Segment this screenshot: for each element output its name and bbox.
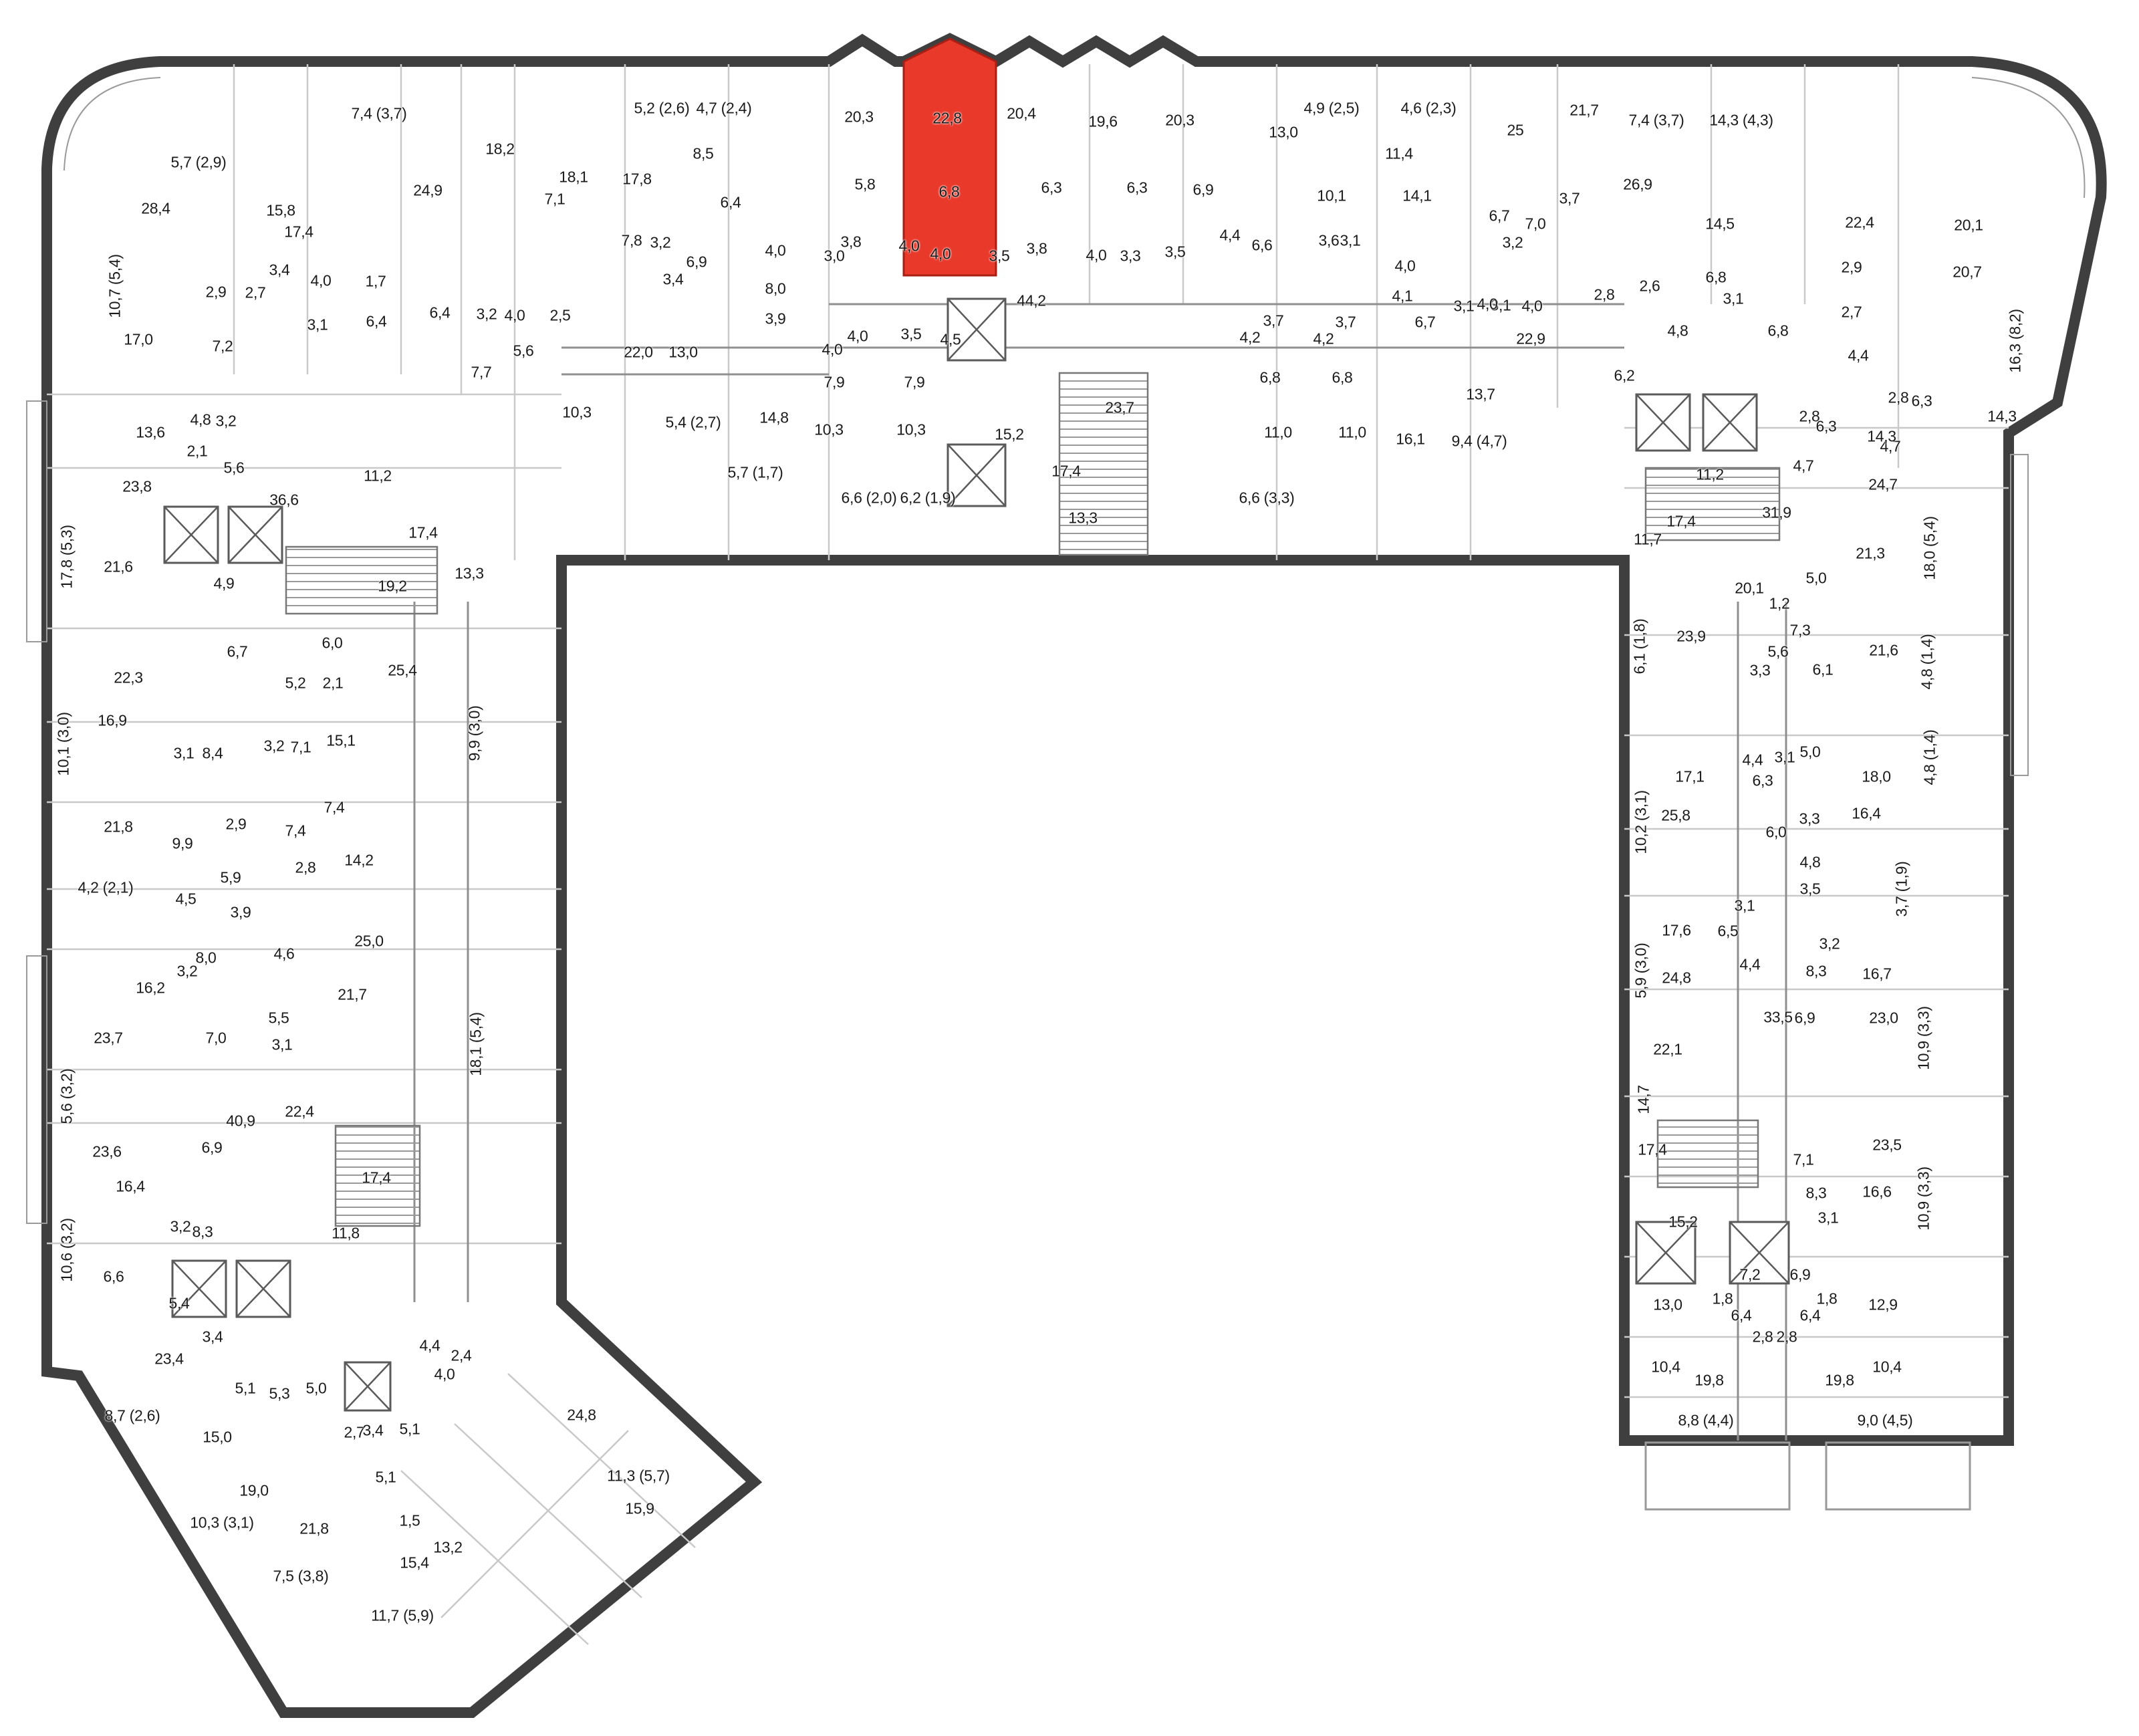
area-label: 13,3	[1068, 509, 1098, 527]
area-label: 3,7 (1,9)	[1893, 862, 1911, 917]
area-label: 8,7 (2,6)	[105, 1407, 160, 1425]
area-label: 10,3	[814, 421, 844, 439]
area-label: 10,3	[562, 404, 592, 422]
area-label: 4,0	[765, 242, 785, 260]
area-label: 15,4	[400, 1554, 429, 1572]
area-label: 17,1	[1675, 768, 1705, 786]
area-label: 2,9	[205, 283, 226, 301]
area-label: 4,0	[1394, 257, 1415, 275]
area-label: 17,4	[408, 524, 438, 542]
area-label: 5,1	[235, 1380, 255, 1398]
area-label: 25,0	[354, 933, 384, 951]
area-label: 4,0	[1521, 297, 1542, 316]
area-label: 11,3 (5,7)	[607, 1467, 670, 1485]
area-label: 17,4	[1666, 513, 1696, 531]
area-label: 5,7 (1,7)	[728, 464, 783, 482]
area-label: 5,1	[399, 1420, 420, 1439]
area-label: 6,9	[686, 253, 707, 271]
area-label: 3,1	[1453, 297, 1474, 316]
area-label: 3,1	[173, 745, 194, 763]
area-label: 16,6	[1862, 1183, 1892, 1201]
area-label: 1,7	[365, 273, 386, 291]
area-label: 6,7	[227, 643, 247, 661]
area-label: 15,2	[995, 426, 1024, 444]
area-label: 6,4	[429, 304, 450, 322]
area-label: 6,6	[1251, 237, 1272, 255]
area-label: 3,1	[1734, 897, 1755, 915]
area-label: 3,8	[1026, 240, 1047, 258]
area-label: 4,0	[434, 1366, 455, 1384]
area-label: 4,0	[847, 328, 868, 346]
area-label: 14,3	[1867, 428, 1896, 446]
area-label: 6,6 (3,3)	[1239, 489, 1295, 507]
area-label: 19,6	[1088, 113, 1118, 131]
area-label: 5,4	[168, 1295, 189, 1313]
area-label: 20,3	[1165, 112, 1194, 130]
area-label: 13,7	[1466, 386, 1495, 404]
area-label: 5,6	[1767, 643, 1788, 661]
area-label: 7,0	[205, 1029, 226, 1047]
area-label: 3,0	[824, 247, 844, 265]
area-label: 2,1	[322, 674, 343, 693]
area-label: 3,3	[1799, 810, 1819, 828]
area-label: 10,9 (3,3)	[1915, 1006, 1933, 1070]
area-label: 18,1	[559, 168, 588, 187]
area-label: 13,3	[455, 565, 484, 583]
area-label: 3,1	[1723, 290, 1743, 308]
area-label: 3,7	[1335, 314, 1356, 332]
area-label: 4,5	[175, 890, 196, 908]
area-label: 2,8	[1752, 1328, 1773, 1346]
entrance-porch	[1646, 1443, 1789, 1509]
area-label: 2,8	[1594, 286, 1614, 304]
area-label: 36,6	[269, 491, 299, 509]
area-label: 6,4	[1731, 1307, 1751, 1325]
area-label: 6,9	[1192, 181, 1213, 199]
floor-plan: 10,7 (5,4)28,45,7 (2,9)15,817,43,424,97,…	[0, 0, 2139, 1736]
area-label: 16,2	[136, 979, 165, 997]
area-label: 3,2	[170, 1218, 191, 1236]
area-label: 18,0 (5,4)	[1921, 516, 1939, 580]
area-label: 19,8	[1694, 1372, 1724, 1390]
area-label: 9,4 (4,7)	[1452, 432, 1507, 451]
area-label: 21,7	[338, 986, 367, 1004]
area-label: 22,4	[1845, 214, 1874, 232]
area-label: 6,3	[1815, 418, 1836, 436]
area-label: 24,7	[1868, 476, 1898, 494]
area-label: 3,1	[1817, 1209, 1838, 1227]
area-label: 7,9	[904, 374, 924, 392]
area-label: 7,9	[824, 374, 844, 392]
area-label: 17,4	[284, 223, 313, 241]
area-label: 1,8	[1816, 1290, 1837, 1308]
area-label: 23,0	[1869, 1009, 1898, 1027]
area-label: 26,9	[1623, 176, 1652, 194]
area-label: 5,9	[220, 869, 241, 887]
area-label: 4,9 (2,5)	[1304, 100, 1360, 118]
area-label: 6,2 (1,9)	[900, 489, 956, 507]
area-label: 11,0	[1338, 424, 1366, 442]
area-label: 2,8	[295, 859, 316, 877]
area-label: 9,0 (4,5)	[1858, 1412, 1913, 1430]
area-label: 7,4 (3,7)	[1629, 112, 1684, 130]
area-label: 4,0	[1086, 247, 1106, 265]
area-label: 22,0	[624, 344, 653, 362]
area-label: 6,8	[1767, 322, 1788, 340]
area-label: 25	[1507, 122, 1524, 140]
area-label: 8,3	[192, 1223, 213, 1241]
area-label: 15,0	[203, 1429, 232, 1447]
area-label: 5,0	[1805, 570, 1826, 588]
area-label: 6,5	[1717, 922, 1738, 941]
area-label: 17,4	[362, 1169, 391, 1187]
area-label: 7,1	[544, 191, 565, 209]
area-label: 3,7	[1559, 190, 1580, 208]
area-label: 4,0	[822, 341, 842, 359]
area-label: 11,7 (5,9)	[371, 1607, 434, 1625]
area-label: 4,7 (2,4)	[697, 100, 752, 118]
area-label: 8,4	[202, 745, 223, 763]
area-label: 3,2	[215, 412, 236, 430]
area-label: 6,4	[1799, 1307, 1820, 1325]
area-label: 20,1	[1735, 580, 1764, 598]
area-label: 8,0	[195, 949, 216, 967]
area-label: 44,2	[1017, 292, 1046, 310]
area-label: 4,4	[1742, 751, 1763, 769]
area-label: 15,2	[1668, 1213, 1698, 1231]
area-label: 18,0	[1862, 768, 1891, 786]
building-footprint	[47, 39, 2102, 1713]
area-label: 6,8	[1332, 369, 1352, 387]
area-label: 10,3	[896, 421, 926, 439]
area-label: 4,4	[1848, 347, 1868, 365]
area-label: 16,3 (8,2)	[2007, 309, 2025, 372]
area-label: 8,0	[765, 280, 785, 298]
area-label: 4,0	[930, 245, 951, 263]
area-label: 40,9	[226, 1112, 255, 1130]
area-label: 3,4	[362, 1422, 383, 1440]
area-label: 6,2	[1614, 367, 1634, 385]
area-label: 3,9	[230, 904, 251, 922]
area-label: 17,8 (5,3)	[58, 525, 76, 588]
area-label: 6,8	[1705, 269, 1726, 287]
area-label: 6,4	[720, 194, 741, 212]
area-label: 23,7	[1105, 399, 1134, 417]
area-label: 17,4	[1051, 463, 1081, 481]
area-label: 3,2	[1502, 234, 1523, 252]
area-label: 1,5	[399, 1512, 420, 1530]
area-label: 5,6	[513, 342, 533, 360]
area-label: 21,6	[104, 558, 133, 576]
area-label: 16,7	[1862, 965, 1892, 983]
area-label: 2,7	[245, 284, 265, 302]
area-label: 3,3	[1749, 662, 1770, 680]
area-label: 7,3	[1789, 622, 1810, 640]
area-label: 11,7	[1634, 531, 1662, 549]
area-label: 14,8	[759, 409, 789, 427]
area-label: 2,7	[344, 1424, 364, 1442]
area-label: 6,1 (1,8)	[1631, 619, 1649, 674]
area-label: 3,5	[900, 326, 921, 344]
area-label: 4,8	[1799, 854, 1820, 872]
area-label: 24,9	[413, 182, 443, 200]
area-label: 6,0	[322, 634, 342, 652]
area-label: 10,9 (3,3)	[1915, 1166, 1933, 1230]
area-label: 13,0	[668, 344, 698, 362]
area-label: 7,2	[212, 338, 233, 356]
area-label: 5,2	[285, 674, 305, 693]
area-label: 7,7	[471, 364, 491, 382]
area-label: 16,4	[1852, 805, 1881, 823]
area-label: 23,9	[1676, 628, 1706, 646]
area-label: 3,5	[1799, 880, 1820, 898]
area-label: 24,8	[567, 1406, 596, 1424]
area-label: 2,1	[186, 443, 207, 461]
area-label: 23,7	[94, 1029, 123, 1047]
area-label: 4,8 (1,4)	[1918, 634, 1936, 690]
area-label: 6,3	[1752, 772, 1773, 790]
area-label: 16,4	[116, 1178, 145, 1196]
area-label: 17,8	[622, 170, 652, 189]
area-label: 22,1	[1653, 1041, 1682, 1059]
area-label: 6,3	[1041, 179, 1061, 197]
area-label: 11,2	[364, 467, 392, 485]
area-label: 6,9	[1789, 1266, 1810, 1284]
area-label: 11,4	[1385, 145, 1413, 163]
area-label: 13,0	[1269, 124, 1298, 142]
area-label: 3,3	[1120, 247, 1140, 265]
area-label: 5,0	[305, 1380, 326, 1398]
area-label: 6,4	[366, 313, 386, 331]
area-label: 19,2	[378, 578, 407, 596]
area-label: 12,9	[1868, 1296, 1898, 1314]
area-label: 7,4	[285, 822, 305, 840]
area-label: 10,1 (3,0)	[55, 712, 73, 775]
area-label: 5,9 (3,0)	[1632, 943, 1650, 999]
area-label: 2,9	[225, 816, 246, 834]
area-label: 6,7	[1414, 314, 1435, 332]
area-label: 4,8 (1,4)	[1921, 730, 1939, 785]
area-label: 22,8	[932, 110, 962, 128]
area-label: 6,1	[1812, 661, 1833, 679]
area-label: 21,6	[1869, 642, 1898, 660]
area-label: 8,5	[693, 145, 713, 163]
area-label: 8,3	[1805, 963, 1826, 981]
area-label: 2,8	[1888, 389, 1908, 407]
area-label: 10,4	[1651, 1358, 1680, 1376]
area-label: 4,2 (2,1)	[78, 879, 134, 897]
area-label: 10,4	[1872, 1358, 1902, 1376]
area-label: 23,8	[122, 478, 152, 496]
area-label: 3,2	[650, 234, 670, 252]
area-label: 3,9	[765, 310, 785, 328]
area-label: 5,1	[375, 1469, 396, 1487]
area-label: 7,5 (3,8)	[273, 1568, 329, 1586]
area-label: 7,0	[1525, 215, 1545, 233]
area-label: 10,1	[1317, 187, 1346, 205]
area-label: 28,4	[141, 200, 170, 218]
area-label: 4,1	[1392, 287, 1412, 305]
area-label: 6,3	[1911, 392, 1932, 410]
area-label: 4,2	[1239, 329, 1260, 347]
area-label: 9,9	[172, 835, 193, 853]
area-label: 3,4	[202, 1328, 223, 1346]
area-label: 19,0	[239, 1482, 269, 1500]
area-label: 17,6	[1662, 922, 1691, 940]
area-label: 21,3	[1856, 545, 1885, 563]
area-label: 6,7	[1489, 207, 1509, 225]
area-label: 25,4	[388, 662, 417, 680]
area-label: 16,9	[98, 712, 127, 730]
area-label: 11,8	[332, 1225, 360, 1243]
area-label: 33,5	[1763, 1009, 1793, 1027]
area-label: 10,3 (3,1)	[190, 1514, 253, 1532]
area-label: 6,9	[1794, 1009, 1815, 1027]
area-label: 21,7	[1569, 102, 1599, 120]
area-label: 6,6 (2,0)	[842, 489, 897, 507]
area-label: 4,0	[1477, 295, 1497, 314]
area-label: 15,8	[266, 202, 295, 220]
area-label: 5,6 (3,2)	[58, 1069, 76, 1124]
area-label: 5,8	[854, 176, 875, 194]
area-label: 10,6 (3,2)	[58, 1218, 76, 1281]
area-label: 31,9	[1762, 504, 1791, 522]
area-label: 20,7	[1953, 263, 1982, 281]
area-label: 6,8	[938, 183, 959, 201]
area-label: 21,8	[299, 1520, 329, 1538]
area-label: 14,3	[1987, 408, 2017, 426]
entrance-porch	[1826, 1443, 1970, 1509]
area-label: 15,1	[326, 732, 356, 750]
area-label: 11,0	[1264, 424, 1292, 442]
area-label: 3,5	[1164, 243, 1185, 261]
area-label: 7,1	[290, 739, 311, 757]
area-label: 18,2	[485, 140, 515, 158]
area-label: 25,8	[1661, 807, 1690, 825]
area-label: 8,3	[1805, 1185, 1826, 1203]
area-label: 3,6	[1318, 232, 1339, 250]
area-label: 9,9 (3,0)	[466, 706, 484, 761]
area-label: 17,0	[124, 331, 153, 349]
area-label: 22,3	[114, 669, 143, 687]
area-label: 2,8	[1776, 1328, 1797, 1346]
area-label: 17,4	[1638, 1141, 1667, 1159]
area-label: 5,3	[269, 1385, 289, 1403]
area-label: 8,8 (4,4)	[1678, 1412, 1734, 1430]
area-label: 22,4	[285, 1103, 314, 1121]
area-label: 3,2	[476, 305, 497, 324]
area-label: 4,4	[1219, 227, 1240, 245]
area-label: 2,6	[1639, 277, 1660, 295]
area-label: 3,1	[1774, 749, 1795, 767]
area-label: 5,7 (2,9)	[171, 154, 227, 172]
area-label: 2,7	[1841, 303, 1862, 322]
area-label: 3,1	[1340, 232, 1360, 250]
area-label: 7,4 (3,7)	[352, 105, 407, 123]
area-label: 5,0	[1799, 743, 1820, 761]
area-label: 6,0	[1765, 824, 1786, 842]
area-label: 4,0	[898, 237, 919, 255]
area-label: 14,3 (4,3)	[1709, 112, 1773, 130]
area-label: 7,1	[1793, 1151, 1813, 1169]
area-label: 3,1	[307, 316, 328, 334]
area-label: 3,4	[662, 271, 683, 289]
area-label: 2,5	[549, 307, 570, 325]
area-label: 5,6	[223, 459, 244, 477]
area-label: 5,2 (2,6)	[634, 100, 690, 118]
area-label: 14,7	[1635, 1085, 1653, 1114]
area-label: 3,4	[269, 261, 289, 279]
area-label: 4,2	[1313, 330, 1334, 348]
area-label: 4,6 (2,3)	[1401, 100, 1457, 118]
area-label: 15,9	[625, 1500, 654, 1518]
area-label: 4,9	[213, 575, 234, 593]
area-label: 22,9	[1516, 330, 1545, 348]
area-label: 23,6	[92, 1143, 122, 1161]
area-label: 4,6	[273, 945, 294, 963]
area-label: 4,8	[1667, 322, 1688, 340]
area-label: 6,6	[103, 1268, 124, 1286]
area-label: 4,0	[504, 307, 525, 325]
area-label: 10,2 (3,1)	[1632, 790, 1650, 854]
area-label: 23,4	[154, 1350, 184, 1368]
area-label: 5,4 (2,7)	[666, 414, 721, 432]
area-label: 13,6	[136, 424, 165, 442]
area-label: 24,8	[1662, 969, 1691, 987]
area-label: 4,4	[1739, 956, 1760, 974]
area-label: 3,2	[1819, 935, 1840, 953]
area-label: 14,1	[1402, 187, 1432, 205]
area-label: 23,5	[1872, 1136, 1902, 1154]
area-label: 18,1 (5,4)	[467, 1012, 485, 1076]
area-label: 20,4	[1007, 105, 1036, 123]
area-label: 16,1	[1396, 430, 1425, 449]
area-label: 10,7 (5,4)	[106, 254, 124, 318]
area-label: 7,8	[621, 232, 642, 250]
area-label: 7,4	[324, 799, 344, 817]
area-label: 4,7	[1793, 457, 1813, 475]
area-label: 3,7	[1263, 312, 1283, 330]
area-label: 21,8	[104, 818, 133, 836]
area-label: 1,2	[1769, 595, 1789, 613]
area-label: 5,5	[268, 1009, 289, 1027]
area-label: 13,0	[1653, 1296, 1682, 1314]
area-label: 4,5	[940, 331, 961, 349]
area-label: 3,2	[176, 963, 197, 981]
area-label: 4,4	[419, 1337, 440, 1355]
area-label: 20,3	[844, 108, 874, 126]
area-label: 3,2	[263, 737, 284, 755]
area-label: 14,5	[1705, 215, 1735, 233]
area-label: 6,8	[1259, 369, 1280, 387]
area-label: 7,2	[1739, 1266, 1760, 1284]
area-label: 4,8	[190, 411, 211, 429]
area-label: 6,3	[1126, 179, 1147, 197]
area-label: 2,9	[1841, 259, 1862, 277]
area-label: 19,8	[1825, 1372, 1854, 1390]
area-label: 4,0	[310, 272, 331, 290]
area-label: 6,9	[201, 1139, 222, 1157]
area-label: 3,1	[271, 1036, 292, 1054]
area-label: 1,8	[1712, 1290, 1733, 1308]
area-label: 13,2	[433, 1539, 463, 1557]
area-label: 14,2	[344, 852, 374, 870]
area-label: 2,4	[451, 1347, 471, 1365]
area-label: 20,1	[1954, 217, 1983, 235]
area-label: 11,2	[1696, 466, 1724, 484]
area-label: 3,5	[989, 247, 1009, 265]
